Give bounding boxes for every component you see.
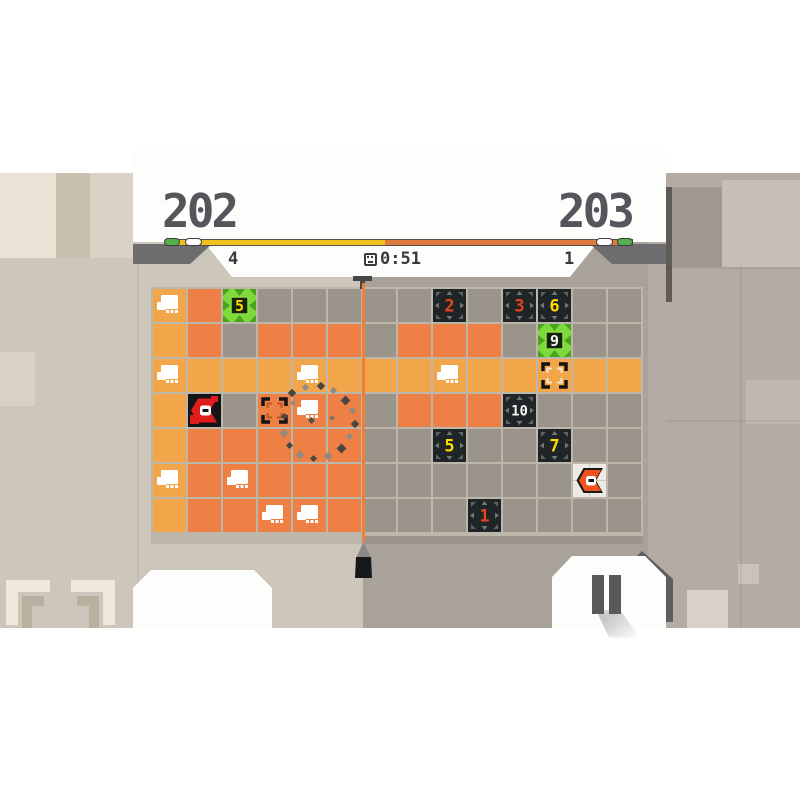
skull-icon (258, 499, 291, 532)
divider-rocket-icon (350, 540, 378, 582)
grid-cell[interactable] (293, 499, 326, 532)
svg-text:10: 10 (511, 404, 528, 420)
grid-cell[interactable] (188, 394, 221, 427)
grid-cell[interactable] (398, 429, 431, 462)
grid-cell[interactable] (608, 289, 641, 322)
grid-cell[interactable]: 2 (433, 289, 466, 322)
progress-right-segment (385, 240, 632, 245)
number-tile: 10 (503, 394, 536, 427)
target-brackets-icon (538, 359, 571, 392)
game-board: 5 2 3 6 (151, 287, 643, 536)
bracket-decor-inner-left (22, 596, 44, 628)
grid-cell[interactable] (328, 499, 361, 532)
pause-button[interactable] (584, 568, 632, 620)
territory-progress-bar (165, 239, 633, 246)
grid-cell[interactable] (328, 464, 361, 497)
grid-cell[interactable] (153, 394, 186, 427)
score-left: 202 (162, 188, 236, 234)
grid-cell[interactable] (363, 499, 396, 532)
grid-cell[interactable] (468, 394, 501, 427)
grid-cell[interactable] (328, 289, 361, 322)
svg-text:5: 5 (444, 437, 454, 457)
grid-cell[interactable]: 9 (538, 324, 571, 357)
grid-cell[interactable] (398, 324, 431, 357)
grid-cell[interactable] (573, 324, 606, 357)
header-trim-left (133, 244, 212, 264)
pause-icon (592, 575, 604, 614)
grid-cell[interactable] (573, 429, 606, 462)
grid-cell[interactable] (573, 289, 606, 322)
grid-cell[interactable] (503, 464, 536, 497)
skull-icon (153, 464, 186, 497)
grid-cell[interactable] (363, 324, 396, 357)
number-tile: 2 (433, 289, 466, 322)
grid-cell[interactable] (188, 464, 221, 497)
bottom-left-panel (133, 570, 272, 628)
grid-cell[interactable] (538, 394, 571, 427)
grid-cell[interactable] (223, 359, 256, 392)
grid-cell[interactable] (573, 464, 606, 497)
grid-cell[interactable]: 5 (223, 289, 256, 322)
grid-cell[interactable] (608, 429, 641, 462)
grid-cell[interactable] (433, 359, 466, 392)
grid-cell[interactable] (223, 394, 256, 427)
grid-cell[interactable] (293, 289, 326, 322)
bracket-decor-inner-right (77, 596, 99, 628)
svg-text:3: 3 (514, 297, 524, 317)
pause-icon (609, 575, 621, 614)
grid-cell[interactable]: 6 (538, 289, 571, 322)
grid-cell[interactable] (223, 499, 256, 532)
grid-cell[interactable] (468, 359, 501, 392)
grid-cell[interactable] (223, 464, 256, 497)
grid-cell[interactable] (293, 324, 326, 357)
grid-cell[interactable] (153, 429, 186, 462)
number-tile: 5 (433, 429, 466, 462)
grid-cell[interactable] (468, 324, 501, 357)
skull-icon (223, 464, 256, 497)
round-pill (164, 238, 180, 246)
grid-cell[interactable] (328, 429, 361, 462)
clock-icon (364, 253, 377, 266)
board-shadow (151, 536, 643, 544)
svg-text:1: 1 (479, 507, 489, 527)
player-red[interactable] (188, 394, 221, 427)
grid-cell[interactable] (503, 359, 536, 392)
territory-divider-line (362, 283, 365, 536)
grid-cell[interactable] (188, 359, 221, 392)
number-tile: 3 (503, 289, 536, 322)
grid-cell[interactable] (398, 359, 431, 392)
grid-cell[interactable] (188, 429, 221, 462)
round-pill (185, 238, 202, 246)
grid-cell[interactable] (573, 499, 606, 532)
score-right: 203 (558, 188, 632, 234)
grid-cell[interactable] (363, 289, 396, 322)
grid-cell[interactable] (188, 289, 221, 322)
skull-icon (433, 359, 466, 392)
grid-cell[interactable] (188, 324, 221, 357)
grid-cell[interactable] (258, 324, 291, 357)
grid-cell[interactable] (433, 324, 466, 357)
grid-cell[interactable] (608, 394, 641, 427)
round-pill (596, 238, 613, 246)
grid-cell[interactable] (363, 429, 396, 462)
match-timer: 0:51 (364, 249, 421, 269)
grid-cell[interactable] (608, 324, 641, 357)
bonus-tile: 5 (223, 289, 256, 322)
grid-cell[interactable]: 7 (538, 429, 571, 462)
grid-cell[interactable] (538, 464, 571, 497)
grid-cell[interactable] (153, 464, 186, 497)
grid-cell[interactable] (363, 394, 396, 427)
svg-text:7: 7 (549, 437, 559, 457)
header-trim-right (590, 244, 666, 264)
grid-cell[interactable] (363, 464, 396, 497)
grid-cell[interactable] (538, 499, 571, 532)
grid-cell[interactable] (398, 394, 431, 427)
grid-cell[interactable] (258, 359, 291, 392)
grid-cell[interactable] (258, 289, 291, 322)
grid-cell[interactable]: 5 (433, 429, 466, 462)
grid-cell[interactable] (258, 464, 291, 497)
number-tile: 6 (538, 289, 571, 322)
skull-icon (293, 499, 326, 532)
grid-cell[interactable] (433, 394, 466, 427)
grid-cell[interactable] (433, 499, 466, 532)
grid-cell[interactable] (503, 324, 536, 357)
grid-cell[interactable] (538, 359, 571, 392)
grid-cell[interactable] (363, 359, 396, 392)
grid-cell[interactable] (573, 394, 606, 427)
grid-cell[interactable] (608, 499, 641, 532)
grid-cell[interactable] (468, 464, 501, 497)
grid-cell[interactable] (398, 499, 431, 532)
grid-cell[interactable] (398, 289, 431, 322)
target-brackets-icon (258, 394, 291, 427)
number-tile: 1 (468, 499, 501, 532)
grid-cell[interactable] (223, 429, 256, 462)
grid-cell[interactable] (328, 324, 361, 357)
unit-counter-right: 1 (564, 249, 574, 269)
grid-cell[interactable] (258, 499, 291, 532)
round-pill (617, 238, 633, 246)
number-tile: 7 (538, 429, 571, 462)
game-screen: 202 203 4 1 0:51 5 2 (0, 0, 800, 800)
grid-cell[interactable] (223, 324, 256, 357)
svg-text:5: 5 (235, 297, 244, 315)
grid-cell[interactable] (573, 359, 606, 392)
grid-cell[interactable] (258, 394, 291, 427)
grid-cell[interactable] (468, 429, 501, 462)
svg-text:2: 2 (444, 297, 454, 317)
grid-cell[interactable] (468, 289, 501, 322)
grid-cell[interactable]: 3 (503, 289, 536, 322)
grid-cell[interactable]: 10 (503, 394, 536, 427)
grid-cell[interactable]: 1 (468, 499, 501, 532)
svg-text:6: 6 (549, 297, 559, 317)
grid-cell[interactable] (503, 499, 536, 532)
svg-text:9: 9 (550, 332, 559, 350)
grid-cell[interactable] (153, 499, 186, 532)
skull-icon (153, 289, 186, 322)
skull-icon (153, 359, 186, 392)
grid-cell[interactable] (503, 429, 536, 462)
grid-cell[interactable] (608, 359, 641, 392)
grid-cell[interactable] (153, 324, 186, 357)
timer-value: 0:51 (380, 249, 421, 269)
grid-cell[interactable] (153, 289, 186, 322)
bonus-tile: 9 (538, 324, 571, 357)
grid-cell[interactable] (188, 499, 221, 532)
grid-cell[interactable] (293, 464, 326, 497)
unit-counter-left: 4 (228, 249, 238, 269)
grid-cell[interactable] (433, 464, 466, 497)
grid-cell[interactable] (153, 359, 186, 392)
grid-cell[interactable] (608, 464, 641, 497)
player-orange[interactable] (573, 464, 606, 497)
grid-cell[interactable] (398, 464, 431, 497)
